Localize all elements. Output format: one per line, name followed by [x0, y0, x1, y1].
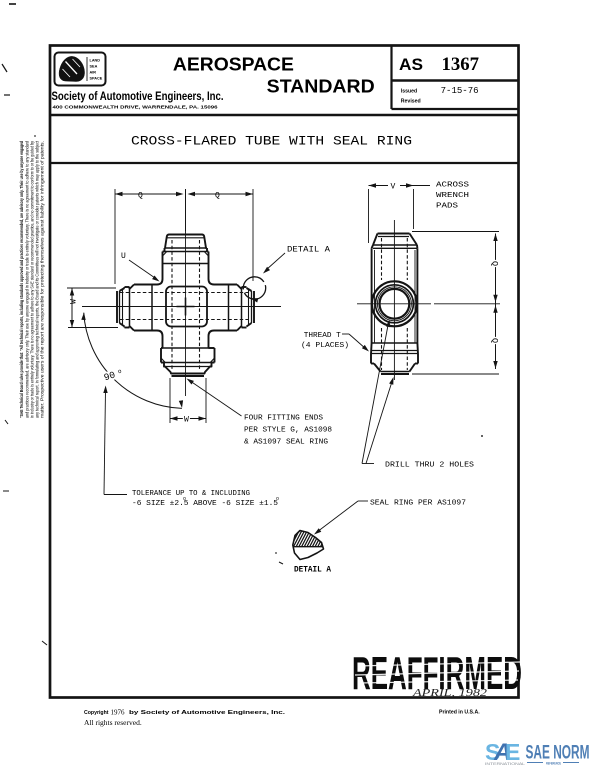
svg-text:1367: 1367	[442, 54, 480, 75]
svg-text:FOUR FITTING ENDS: FOUR FITTING ENDS	[244, 415, 324, 423]
svg-text:matter. Prospective users of t: matter. Prospective users of the report …	[40, 141, 45, 418]
svg-text:7-15-76: 7-15-76	[441, 86, 479, 96]
svg-text:Revised: Revised	[401, 99, 421, 105]
svg-text:APRIL, 1982: APRIL, 1982	[412, 687, 488, 699]
svg-text:TOLERANCE UP TO & INCLUDING: TOLERANCE UP TO & INCLUDING	[132, 490, 250, 498]
svg-text:o: o	[276, 496, 279, 502]
svg-text:400 COMMONWEALTH DRIVE, WARREN: 400 COMMONWEALTH DRIVE, WARRENDALE, PA. …	[53, 105, 219, 110]
svg-text:DRILL THRU 2 HOLES: DRILL THRU 2 HOLES	[385, 462, 474, 470]
svg-text:All rights reserved.: All rights reserved.	[84, 718, 142, 727]
svg-text:Printed in U.S.A.: Printed in U.S.A.	[439, 710, 480, 716]
svg-text:DETAIL A: DETAIL A	[287, 246, 330, 255]
svg-text:SEA: SEA	[90, 65, 98, 69]
svg-text:WRENCH: WRENCH	[436, 192, 469, 200]
svg-text:U: U	[121, 252, 126, 261]
svg-text:Issued: Issued	[401, 89, 417, 95]
svg-text:by Society of Automotive Engin: by Society of Automotive Engineers, Inc.	[129, 710, 286, 716]
svg-text:& AS1097 SEAL RING: & AS1097 SEAL RING	[244, 439, 328, 447]
svg-text:W: W	[70, 299, 79, 304]
svg-text:AEROSPACE: AEROSPACE	[173, 55, 294, 75]
svg-text:REFERENCE: REFERENCE	[546, 762, 561, 766]
svg-text:STANDARD: STANDARD	[267, 77, 375, 97]
svg-text:SPACE: SPACE	[90, 77, 103, 81]
svg-text:INTERNATIONAL: INTERNATIONAL	[485, 761, 526, 766]
svg-text:Q: Q	[215, 192, 220, 201]
svg-text:PER STYLE G, AS1098: PER STYLE G, AS1098	[244, 427, 332, 435]
svg-text:ACROSS: ACROSS	[436, 182, 470, 190]
svg-text:AIR: AIR	[90, 71, 97, 75]
svg-text:V: V	[391, 183, 396, 192]
svg-text:o: o	[117, 368, 123, 376]
svg-text:Copyright: Copyright	[84, 710, 109, 716]
svg-text:1976: 1976	[111, 709, 126, 717]
svg-text:Q: Q	[138, 192, 143, 201]
svg-text:o: o	[183, 496, 186, 502]
svg-text:W: W	[184, 416, 189, 425]
svg-text:SEAL RING PER AS1097: SEAL RING PER AS1097	[370, 500, 466, 508]
svg-text:CROSS-FLARED TUBE WITH SEAL RI: CROSS-FLARED TUBE WITH SEAL RING	[131, 135, 412, 149]
svg-text:Q: Q	[490, 338, 500, 343]
svg-text:AS: AS	[399, 55, 423, 74]
svg-text:LAND: LAND	[90, 59, 101, 63]
svg-text:-6 SIZE ±2.5 ABOVE -6 SIZE ±1: -6 SIZE ±2.5 ABOVE -6 SIZE ±1.5	[132, 500, 278, 508]
svg-text:(4 PLACES): (4 PLACES)	[301, 342, 349, 350]
svg-text:PADS: PADS	[436, 203, 459, 211]
svg-text:SAE NORM: SAE NORM	[526, 743, 590, 764]
svg-text:Q: Q	[490, 261, 500, 266]
svg-text:THREAD T: THREAD T	[304, 332, 342, 340]
svg-text:90: 90	[103, 369, 118, 383]
svg-text:Society of Automotive Engineer: Society of Automotive Engineers, Inc.	[52, 89, 224, 103]
svg-text:DETAIL A: DETAIL A	[294, 566, 331, 575]
